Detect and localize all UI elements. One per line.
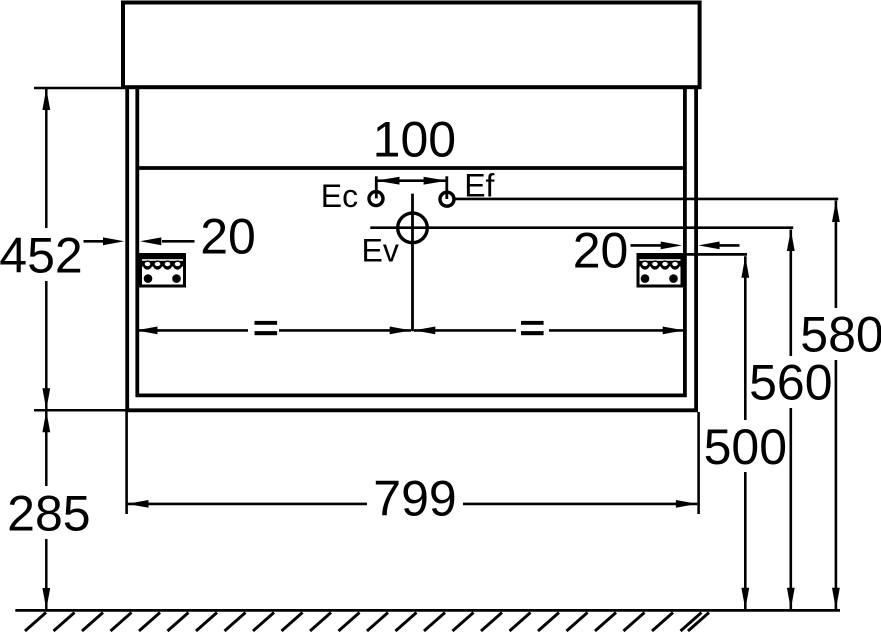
svg-text:799: 799	[373, 471, 456, 527]
svg-text:Ec: Ec	[321, 178, 358, 214]
svg-text:285: 285	[7, 486, 90, 542]
svg-text:452: 452	[0, 228, 83, 284]
svg-text:500: 500	[704, 419, 787, 475]
svg-text:20: 20	[573, 223, 629, 279]
svg-text:20: 20	[200, 209, 256, 265]
svg-text:100: 100	[373, 112, 456, 168]
svg-text:Ev: Ev	[362, 232, 399, 268]
svg-text:560: 560	[749, 355, 832, 411]
svg-text:580: 580	[800, 307, 881, 363]
